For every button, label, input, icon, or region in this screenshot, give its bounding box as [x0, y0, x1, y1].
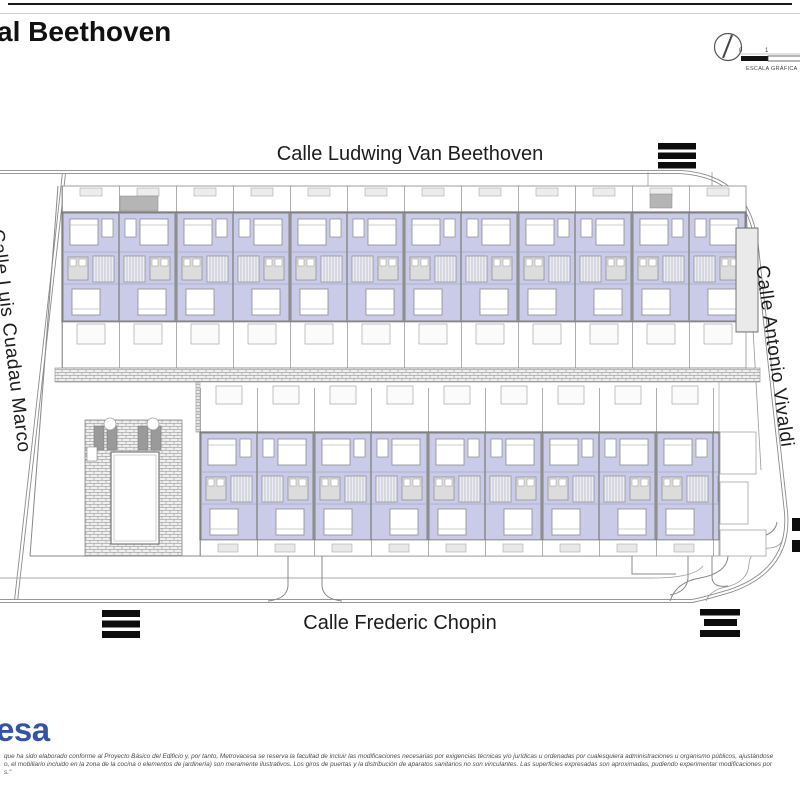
- north-arrow-icon: [715, 34, 742, 61]
- disclaimer-line: o, el mobiliario incluido en la zona de …: [4, 761, 800, 769]
- garage-block: [650, 194, 672, 208]
- pedestrian-path: [55, 368, 760, 382]
- scale-bar-open: [768, 56, 800, 61]
- header-divider: [0, 13, 800, 14]
- disclaimer-line: que ha sido elaborado conforme al Proyec…: [4, 753, 800, 761]
- disclaimer: que ha sido elaborado conforme al Proyec…: [4, 753, 800, 777]
- site-boundary-south: [30, 556, 676, 574]
- street-label-south: Calle Frederic Chopin: [0, 612, 800, 635]
- pool-table: [104, 418, 116, 430]
- metrovacesa-logo-fragment: esa: [0, 711, 50, 749]
- scale-tick-1: 1: [765, 48, 769, 54]
- curb-line-south: [0, 566, 703, 578]
- housing-row-south: [200, 382, 719, 556]
- housing-row-north: [62, 186, 746, 368]
- plan-page: 0 1 ESCALA GRÁFICA al Beethoven Calle Lu…: [0, 0, 800, 800]
- site-boundary-west: [30, 186, 58, 556]
- street-label-north: Calle Ludwing Van Beethoven: [0, 143, 800, 166]
- pool-table: [147, 418, 159, 430]
- top-rule: [8, 3, 792, 5]
- graphic-scale: 0 1 ESCALA GRÁFICA: [739, 48, 800, 72]
- scale-bar-solid: [741, 56, 768, 61]
- crosswalk-east-edge: [792, 518, 800, 552]
- scale-label: ESCALA GRÁFICA: [746, 65, 798, 72]
- scale-tick-0: 0: [739, 48, 743, 54]
- east-patio-steps: [720, 432, 766, 556]
- page-title: al Beethoven: [0, 16, 171, 48]
- site-plan: 0 1 ESCALA GRÁFICA: [0, 0, 800, 800]
- disclaimer-line: s.": [4, 769, 800, 777]
- pool: [111, 452, 159, 544]
- pool-equipment: [87, 447, 97, 461]
- garage-block: [120, 196, 158, 211]
- pool-area: [85, 418, 182, 556]
